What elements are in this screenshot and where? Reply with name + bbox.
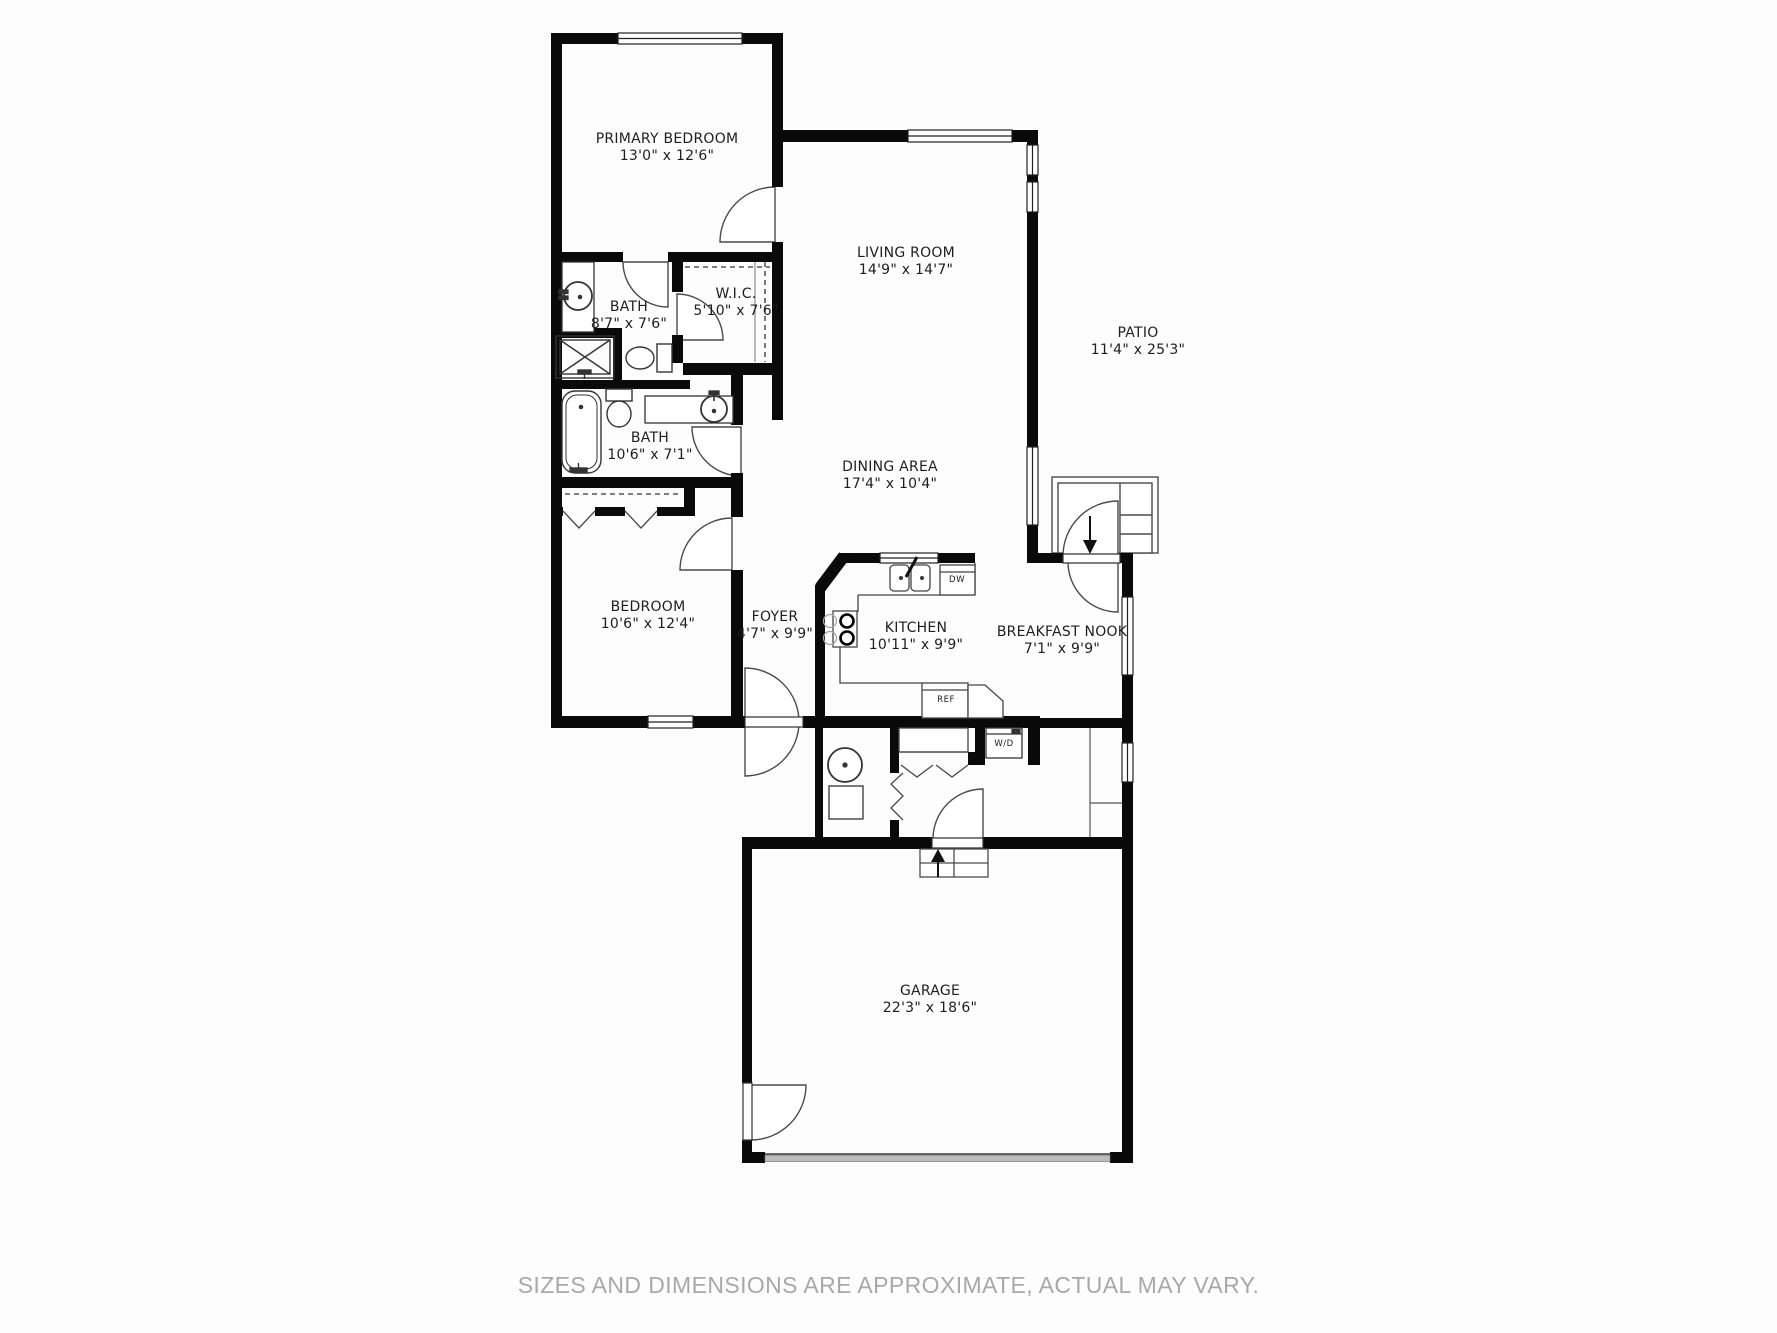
bedroom-closet-bifold [563,511,595,528]
room-name: W.I.C. [693,286,778,303]
ref-label: REF [937,695,955,705]
garage-entry-door-arc [933,789,983,839]
room-label-patio: PATIO 11'4" x 25'3" [1091,325,1185,359]
bath1-sink-icon [559,262,594,332]
window [648,716,693,728]
room-name: DINING AREA [842,459,938,476]
room-dims: 7'1" x 9'9" [997,641,1127,658]
room-name: PATIO [1091,325,1185,342]
room-label-dining-area: DINING AREA 17'4" x 10'4" [842,459,938,493]
room-label-living-room: LIVING ROOM 14'9" x 14'7" [857,245,955,279]
bath2-sink-icon [645,391,733,423]
room-name: PRIMARY BEDROOM [596,131,739,148]
hall-closet-bifold [901,765,933,777]
room-name: LIVING ROOM [857,245,955,262]
room-name: BATH [607,430,692,447]
room-dims: 5'10" x 7'6" [693,303,778,320]
room-label-garage: GARAGE 22'3" x 18'6" [883,983,977,1017]
window [1027,145,1038,175]
room-dims: 11'4" x 25'3" [1091,342,1185,359]
room-dims: 10'11" x 9'9" [869,637,963,654]
hall-closet-shelf [899,728,968,752]
front-door-leaf [745,717,803,727]
room-dims: 22'3" x 18'6" [883,1000,977,1017]
storage-shelf-lines [1090,728,1122,845]
bath2-door-arc [692,427,741,476]
room-dims: 10'6" x 7'1" [607,447,692,464]
room-dims: 4'7" x 9'9" [737,626,813,643]
window [618,33,742,44]
patio-door-leaf [1063,554,1120,563]
disclaimer-text: SIZES AND DIMENSIONS ARE APPROXIMATE, AC… [0,1272,1777,1299]
garage-door [765,1154,1110,1162]
water-heater-icon [828,748,863,819]
window [1122,743,1133,782]
room-label-breakfast-nook: BREAKFAST NOOK 7'1" x 9'9" [997,624,1127,658]
garage-steps [920,849,988,877]
shower-icon [556,336,614,379]
window [1027,447,1038,525]
room-label-primary-bedroom: PRIMARY BEDROOM 13'0" x 12'6" [596,131,739,165]
front-door-arc-in [745,668,799,722]
kitchen-diagonal-wall [820,556,844,588]
hall-closet-bifold [936,765,968,777]
garage-entry-door-leaf [932,838,983,848]
wh-closet-bifold [891,773,903,820]
garage-side-door-arc [751,1085,806,1140]
front-door-arc-out [745,722,799,776]
room-name: BREAKFAST NOOK [997,624,1127,641]
window [908,130,1012,142]
floorplan-page: PRIMARY BEDROOM 13'0" x 12'6" LIVING ROO… [0,0,1777,1333]
room-name: FOYER [737,609,813,626]
primary-bedroom-door-arc [720,187,775,242]
walls [551,33,1133,1163]
bathtub-icon [562,391,601,473]
stove-icon [824,611,858,647]
room-name: BATH [591,299,667,316]
room-dims: 8'7" x 7'6" [591,316,667,333]
bedroom-closet-bifold [625,511,657,528]
room-label-bath-1: BATH 8'7" x 7'6" [591,299,667,333]
door-arcs [623,187,1118,1140]
room-label-kitchen: KITCHEN 10'11" x 9'9" [869,620,963,654]
patio-door-arc-in [1068,562,1118,612]
room-label-wic: W.I.C. 5'10" x 7'6" [693,286,778,320]
room-dims: 10'6" x 12'4" [601,616,695,633]
room-name: BEDROOM [601,599,695,616]
window [1027,182,1038,212]
garage-side-door-leaf [743,1083,752,1140]
room-name: GARAGE [883,983,977,1000]
wd-label: W/D [994,739,1013,749]
room-label-bath-2: BATH 10'6" x 7'1" [607,430,692,464]
dw-label: DW [949,575,965,585]
bedroom-door-arc [680,518,732,570]
room-name: KITCHEN [869,620,963,637]
room-label-bedroom: BEDROOM 10'6" x 12'4" [601,599,695,633]
room-label-foyer: FOYER 4'7" x 9'9" [737,609,813,643]
window [880,553,938,563]
floorplan-svg [0,0,1777,1333]
kitchen-corner-cabinet [968,685,1003,718]
bath2-toilet-icon [606,389,632,427]
room-dims: 14'9" x 14'7" [857,262,955,279]
bath1-toilet-icon [626,344,672,372]
room-dims: 13'0" x 12'6" [596,148,739,165]
room-dims: 17'4" x 10'4" [842,476,938,493]
